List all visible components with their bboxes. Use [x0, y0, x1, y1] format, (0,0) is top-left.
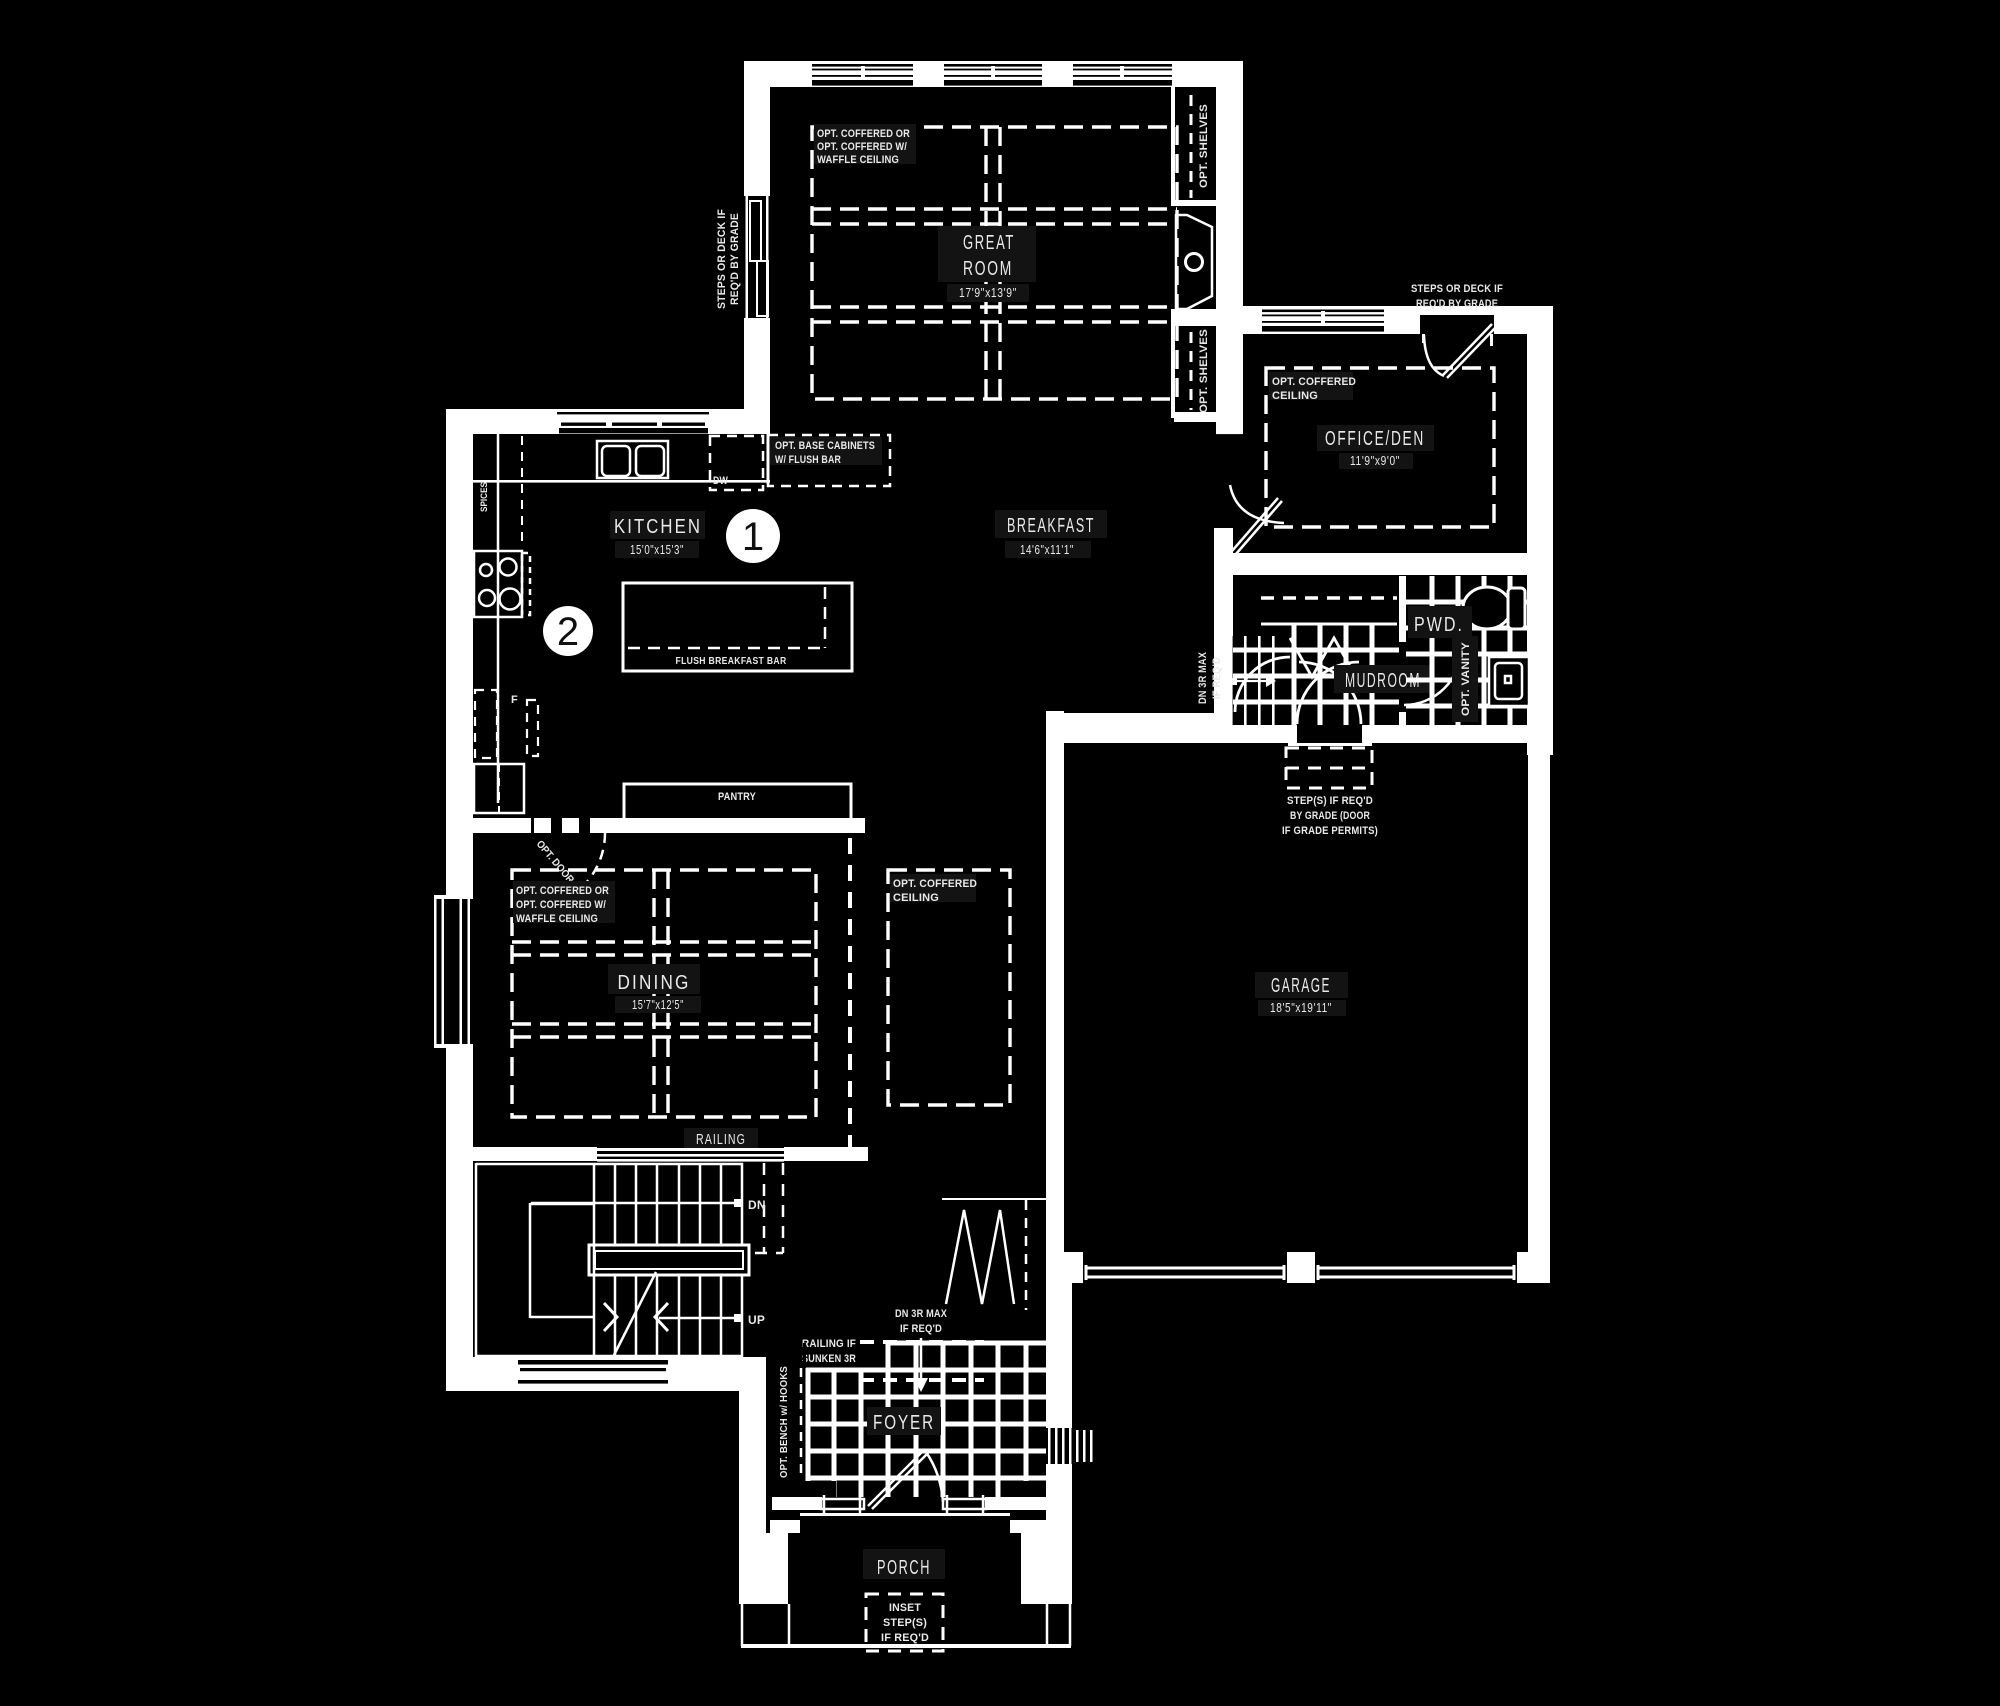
svg-text:CEILING: CEILING: [893, 892, 939, 904]
svg-text:RAILING IF: RAILING IF: [802, 1338, 856, 1350]
svg-text:11'9"x9'0": 11'9"x9'0": [1350, 453, 1400, 468]
svg-text:GREAT: GREAT: [963, 232, 1015, 254]
svg-text:GARAGE: GARAGE: [1271, 975, 1331, 997]
svg-text:PANTRY: PANTRY: [718, 791, 756, 803]
svg-text:14'6"x11'1": 14'6"x11'1": [1020, 542, 1074, 557]
svg-text:17'9"x13'9": 17'9"x13'9": [959, 285, 1017, 300]
svg-text:DN 3R MAX: DN 3R MAX: [1197, 652, 1209, 704]
svg-text:IF REQ'D: IF REQ'D: [1211, 657, 1223, 699]
svg-text:OPT. COFFERED: OPT. COFFERED: [1272, 376, 1356, 388]
svg-text:OPT. VANITY: OPT. VANITY: [1460, 642, 1472, 716]
svg-text:2: 2: [557, 610, 579, 654]
svg-text:STEPS OR DECK IF: STEPS OR DECK IF: [1411, 283, 1503, 295]
svg-text:KITCHEN: KITCHEN: [614, 516, 702, 538]
svg-text:OPT. COFFERED: OPT. COFFERED: [893, 878, 977, 890]
svg-text:IF REQ'D: IF REQ'D: [900, 1323, 942, 1335]
svg-text:OPT. COFFERED OR: OPT. COFFERED OR: [516, 885, 609, 897]
svg-text:ROOM: ROOM: [963, 258, 1013, 280]
svg-text:STEP(S): STEP(S): [883, 1617, 927, 1629]
svg-text:PORCH: PORCH: [877, 1557, 931, 1579]
svg-text:INSET: INSET: [889, 1602, 921, 1614]
svg-text:UP: UP: [748, 1313, 765, 1327]
svg-text:STEPS OR DECK IF: STEPS OR DECK IF: [716, 209, 728, 309]
svg-text:REQ'D BY GRADE: REQ'D BY GRADE: [729, 213, 741, 305]
svg-text:W/ FLUSH BAR: W/ FLUSH BAR: [775, 454, 841, 466]
svg-text:SUNKEN 3R: SUNKEN 3R: [802, 1353, 856, 1365]
svg-text:OPT. BASE CABINETS: OPT. BASE CABINETS: [775, 440, 875, 452]
svg-text:OPT. BENCH w/ HOOKS: OPT. BENCH w/ HOOKS: [779, 1366, 790, 1478]
svg-text:OPT. COFFERED OR: OPT. COFFERED OR: [817, 128, 910, 140]
svg-text:CEILING: CEILING: [1272, 390, 1318, 402]
svg-text:REQ'D BY GRADE: REQ'D BY GRADE: [1416, 298, 1498, 310]
svg-text:DN 3R MAX: DN 3R MAX: [895, 1308, 947, 1320]
svg-text:15'0"x15'3": 15'0"x15'3": [630, 542, 684, 557]
svg-text:WAFFLE CEILING: WAFFLE CEILING: [516, 913, 598, 925]
svg-text:BY GRADE (DOOR: BY GRADE (DOOR: [1290, 810, 1370, 822]
svg-text:RAILING: RAILING: [696, 1131, 746, 1148]
svg-text:OPT. COFFERED W/: OPT. COFFERED W/: [817, 141, 907, 153]
svg-text:1: 1: [742, 515, 764, 559]
svg-text:SPICES: SPICES: [479, 482, 489, 512]
svg-text:OFFICE/DEN: OFFICE/DEN: [1325, 428, 1425, 450]
svg-text:PWD.: PWD.: [1414, 614, 1464, 636]
svg-text:OPT. COFFERED W/: OPT. COFFERED W/: [516, 899, 606, 911]
svg-text:IF GRADE PERMITS): IF GRADE PERMITS): [1282, 825, 1378, 837]
svg-text:IF REQ'D: IF REQ'D: [881, 1632, 929, 1644]
svg-text:OPT. SHELVES: OPT. SHELVES: [1198, 104, 1210, 188]
svg-text:DN: DN: [748, 1198, 766, 1212]
svg-text:DW: DW: [713, 475, 728, 487]
svg-text:FOYER: FOYER: [873, 1412, 935, 1434]
svg-text:FLUSH BREAKFAST BAR: FLUSH BREAKFAST BAR: [676, 655, 787, 667]
svg-text:WAFFLE CEILING: WAFFLE CEILING: [817, 154, 899, 166]
svg-text:15'7"x12'5": 15'7"x12'5": [632, 997, 684, 1012]
svg-text:18'5"x19'11": 18'5"x19'11": [1270, 1000, 1332, 1015]
svg-text:OPT. SHELVES: OPT. SHELVES: [1198, 329, 1210, 413]
svg-text:DINING: DINING: [618, 972, 691, 994]
svg-text:STEP(S) IF REQ'D: STEP(S) IF REQ'D: [1287, 795, 1373, 807]
svg-text:F: F: [511, 694, 518, 706]
svg-text:BREAKFAST: BREAKFAST: [1007, 515, 1095, 537]
